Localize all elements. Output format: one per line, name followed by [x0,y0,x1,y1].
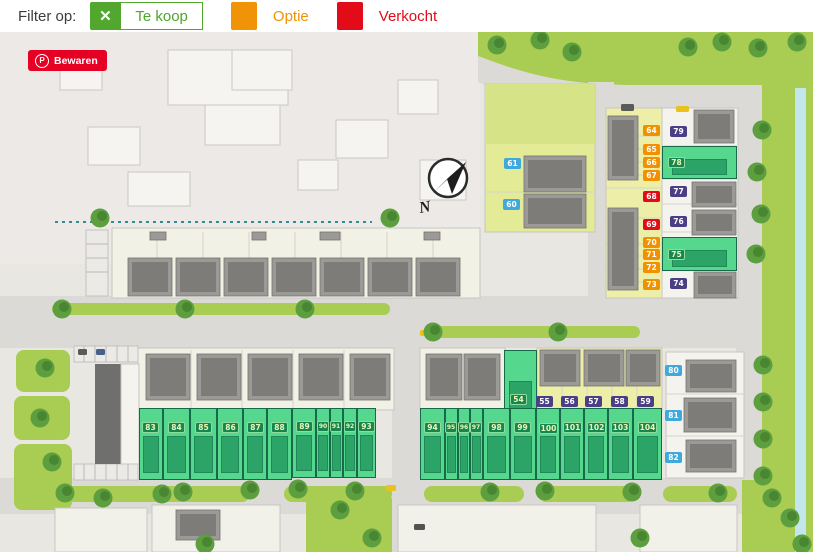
plot-badge-89[interactable]: 89 [296,421,313,432]
house-footprint [332,435,340,471]
plot-badge-94[interactable]: 94 [424,422,441,433]
house-footprint [221,436,239,473]
house-footprint [360,435,373,471]
plot-cell-102[interactable] [584,408,608,480]
plot-cell-95[interactable] [445,408,458,480]
plot-cell-92[interactable] [343,408,357,478]
plot-badge-59[interactable]: 59 [637,396,654,407]
optie-swatch [231,2,257,30]
plot-badge-74[interactable]: 74 [670,278,687,289]
plot-cell-98[interactable] [483,408,510,480]
plot-badge-96[interactable]: 96 [458,422,470,433]
plot-badge-67[interactable]: 67 [643,170,660,181]
plot-badge-79[interactable]: 79 [670,126,687,137]
plot-cell-91[interactable] [330,408,343,478]
plot-badge-54[interactable]: 54 [510,394,527,405]
plot-badge-57[interactable]: 57 [585,396,602,407]
plot-badge-55[interactable]: 55 [536,396,553,407]
plot-cell-93[interactable] [357,408,376,478]
plot-cell-86[interactable] [217,408,243,480]
save-button-label: Bewaren [54,55,98,67]
plot-badge-95[interactable]: 95 [445,422,457,433]
site-map[interactable]: N P Bewaren 6160808182646566676869707172… [0,32,813,552]
pinterest-icon: P [35,54,49,68]
house-footprint [564,436,581,473]
house-footprint [194,436,213,473]
plot-badge-88[interactable]: 88 [271,422,288,433]
plot-badge-71[interactable]: 71 [643,249,660,260]
plot-badge-83[interactable]: 83 [142,422,159,433]
house-footprint [271,436,289,473]
plot-cell-99[interactable] [510,408,536,480]
plot-cell-87[interactable] [243,408,267,480]
house-footprint [637,436,658,473]
filter-bar: Filter op: ✕ Te koop Optie Verkocht [0,0,813,32]
plot-cell-89[interactable] [292,408,316,478]
plot-badge-99[interactable]: 99 [514,422,531,433]
plot-badge-103[interactable]: 103 [611,422,630,433]
plot-cell-90[interactable] [316,408,330,478]
plot-cell-85[interactable] [190,408,217,480]
plot-badge-56[interactable]: 56 [561,396,578,407]
plot-badge-100[interactable]: 100 [539,423,558,434]
plot-badge-82[interactable]: 82 [665,452,682,463]
plot-badge-85[interactable]: 85 [195,422,212,433]
plot-badge-91[interactable]: 91 [330,421,342,432]
plot-badge-72[interactable]: 72 [643,262,660,273]
plot-badge-87[interactable]: 87 [247,422,264,433]
plot-cell-103[interactable] [608,408,633,480]
plot-badge-58[interactable]: 58 [611,396,628,407]
plot-badge-68[interactable]: 68 [643,191,660,202]
plot-cell-100[interactable] [536,408,560,480]
plot-badge-104[interactable]: 104 [638,422,657,433]
pinterest-save-button[interactable]: P Bewaren [28,50,107,71]
house-footprint [612,436,630,473]
house-footprint [424,436,442,473]
plot-badge-64[interactable]: 64 [643,125,660,136]
house-footprint [143,436,160,473]
plot-badge-93[interactable]: 93 [358,421,375,432]
house-footprint [514,436,532,473]
plot-badge-92[interactable]: 92 [344,421,356,432]
plot-badge-86[interactable]: 86 [222,422,239,433]
plot-badge-65[interactable]: 65 [643,144,660,155]
filter-label: Filter op: [18,8,76,25]
plot-badge-76[interactable]: 76 [670,216,687,227]
house-footprint [472,436,480,473]
plot-badge-66[interactable]: 66 [643,157,660,168]
plot-cell-88[interactable] [267,408,292,480]
plot-badge-98[interactable]: 98 [488,422,505,433]
plot-badge-81[interactable]: 81 [665,410,682,421]
plot-badge-80[interactable]: 80 [665,365,682,376]
plot-badge-75[interactable]: 75 [668,249,685,260]
verkocht-swatch [337,2,363,30]
filter-optie-label: Optie [273,8,309,25]
plot-cell-83[interactable] [139,408,163,480]
house-footprint [318,435,327,471]
plot-badge-90[interactable]: 90 [317,421,329,432]
plot-badge-69[interactable]: 69 [643,219,660,230]
map-artwork: N [0,32,813,552]
plot-badge-61[interactable]: 61 [504,158,521,169]
x-icon[interactable]: ✕ [90,2,120,30]
plot-cell-96[interactable] [458,408,470,480]
plot-badge-77[interactable]: 77 [670,186,687,197]
filter-te-koop-label: Te koop [120,2,203,30]
house-footprint [345,435,354,471]
filter-verkocht[interactable]: Verkocht [337,2,437,30]
house-footprint [460,436,468,473]
plot-cell-101[interactable] [560,408,584,480]
house-footprint [588,436,605,473]
filter-optie[interactable]: Optie [231,2,309,30]
house-footprint [447,436,455,473]
plot-badge-73[interactable]: 73 [643,279,660,290]
filter-verkocht-label: Verkocht [379,8,437,25]
plot-cell-84[interactable] [163,408,190,480]
house-footprint [487,436,506,473]
plot-badge-78[interactable]: 78 [668,157,685,168]
plot-badge-97[interactable]: 97 [470,422,482,433]
filter-te-koop[interactable]: ✕ Te koop [90,2,203,30]
house-footprint [247,436,264,473]
plot-cell-104[interactable] [633,408,662,480]
plot-cell-94[interactable] [420,408,445,480]
house-footprint [540,436,557,473]
plot-badge-102[interactable]: 102 [587,422,606,433]
house-footprint [167,436,186,473]
plot-badge-70[interactable]: 70 [643,237,660,248]
plot-badge-84[interactable]: 84 [168,422,185,433]
house-footprint [296,435,313,471]
plot-cell-97[interactable] [470,408,483,480]
plot-badge-60[interactable]: 60 [503,199,520,210]
plot-badge-101[interactable]: 101 [563,422,582,433]
